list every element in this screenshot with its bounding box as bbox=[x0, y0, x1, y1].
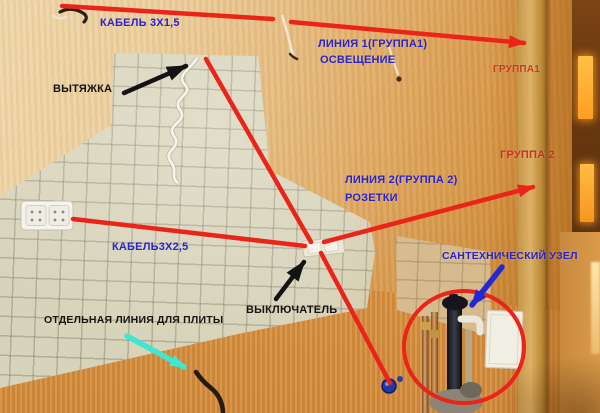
red-line-hood-to-switch bbox=[206, 59, 311, 242]
label-group1: ГРУППА1 bbox=[493, 64, 540, 75]
annotated-kitchen-wall-photo: КАБЕЛЬ 3Х1,5 ЛИНИЯ 1(ГРУППА1) ОСВЕЩЕНИЕ … bbox=[0, 0, 600, 413]
label-switch: ВЫКЛЮЧАТЕЛЬ bbox=[246, 304, 337, 316]
cable-hook-top-left bbox=[52, 9, 86, 22]
label-line2: ЛИНИЯ 2(ГРУППА 2) bbox=[345, 174, 457, 186]
red-line-switch-down bbox=[321, 253, 390, 383]
label-stove-line: ОТДЕЛЬНАЯ ЛИНИЯ ДЛЯ ПЛИТЫ bbox=[44, 314, 223, 326]
red-line-socket-to-switch bbox=[73, 219, 305, 246]
label-hood: ВЫТЯЖКА bbox=[53, 83, 112, 95]
label-line1: ЛИНИЯ 1(ГРУППА1) bbox=[318, 38, 427, 50]
wall-socket bbox=[21, 201, 73, 230]
label-cable-3x2-5: КАБЕЛЬ3Х2,5 bbox=[112, 241, 188, 253]
coiled-hood-cable bbox=[169, 58, 197, 183]
label-line2-sockets: РОЗЕТКИ bbox=[345, 192, 398, 204]
stove-line-arrow bbox=[127, 336, 184, 367]
label-line1-lighting: ОСВЕЩЕНИЕ bbox=[320, 54, 395, 66]
switch-pointer-arrow bbox=[276, 262, 304, 299]
label-plumbing-unit: САНТЕХНИЧЕСКИЙ УЗЕЛ bbox=[442, 250, 578, 262]
label-cable-3x1-5: КАБЕЛЬ 3Х1,5 bbox=[100, 17, 180, 29]
hood-pointer-arrow bbox=[124, 66, 186, 93]
label-group2: ГРУППА 2 bbox=[500, 149, 555, 161]
stove-cable bbox=[196, 372, 223, 412]
annotation-overlay bbox=[0, 0, 600, 413]
